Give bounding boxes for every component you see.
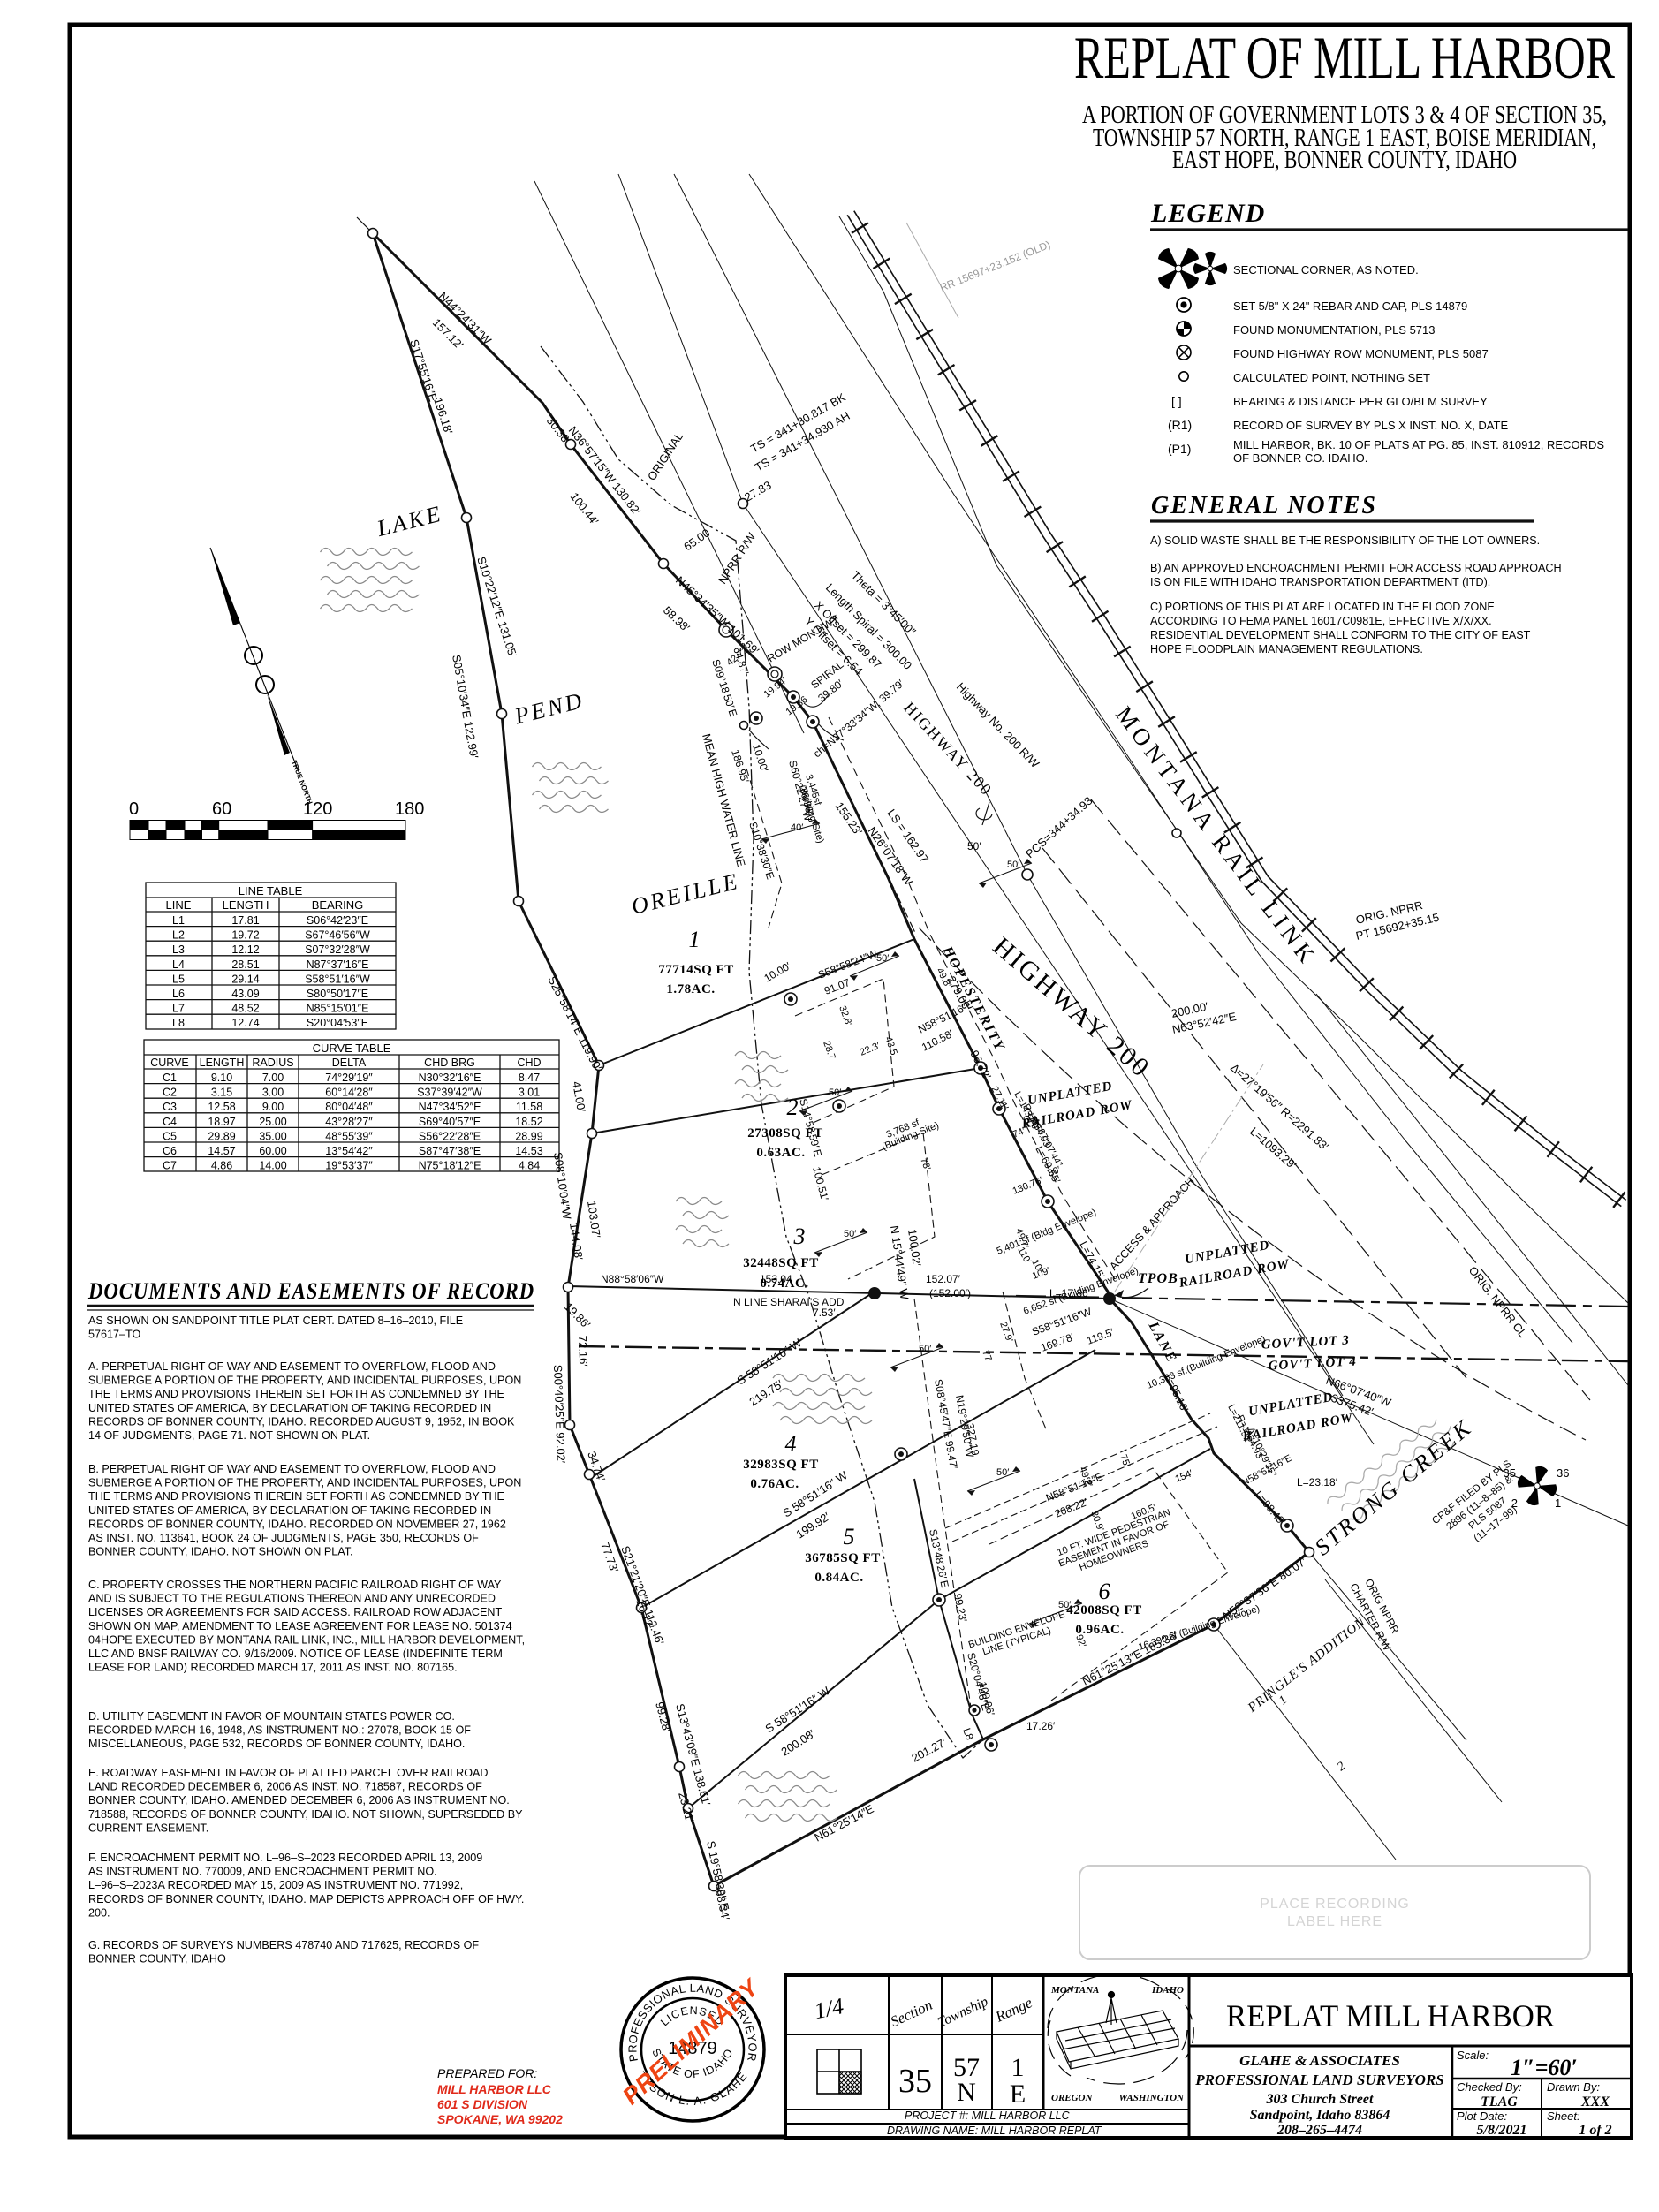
svg-text:S56°22′28″E: S56°22′28″E <box>419 1130 481 1142</box>
svg-text:1.78AC.: 1.78AC. <box>666 982 715 996</box>
svg-text:S67°46′56″W: S67°46′56″W <box>305 929 370 942</box>
svg-text:50′: 50′ <box>919 1344 931 1354</box>
svg-text:L4: L4 <box>172 958 185 971</box>
svg-text:80°04′48″: 80°04′48″ <box>325 1101 373 1113</box>
svg-text:L3: L3 <box>172 943 185 956</box>
svg-text:14.57: 14.57 <box>208 1145 235 1157</box>
svg-text:DRAWING NAME: MILL HARBOR REP: DRAWING NAME: MILL HARBOR REPLAT <box>887 2125 1102 2137</box>
svg-text:60°14′28″: 60°14′28″ <box>325 1087 373 1099</box>
svg-text:N75°18′12″E: N75°18′12″E <box>419 1160 481 1172</box>
svg-text:N30°32′16″E: N30°32′16″E <box>419 1072 481 1084</box>
svg-text:7.00: 7.00 <box>262 1072 284 1084</box>
svg-text:18.97: 18.97 <box>208 1116 235 1128</box>
svg-text:MONTANA: MONTANA <box>1050 1985 1099 1996</box>
svg-text:L2: L2 <box>172 929 185 942</box>
svg-text:OF BONNER CO. IDAHO.: OF BONNER CO. IDAHO. <box>1233 451 1367 465</box>
svg-text:IDAHO: IDAHO <box>1151 1985 1184 1996</box>
svg-text:C3: C3 <box>163 1101 177 1113</box>
svg-text:S80°50′17″E: S80°50′17″E <box>307 988 368 1000</box>
svg-text:OREGON: OREGON <box>1051 2093 1094 2103</box>
svg-text:SPOKANE, WA 99202: SPOKANE, WA 99202 <box>437 2112 563 2126</box>
svg-text:14.53: 14.53 <box>515 1145 542 1157</box>
svg-text:0: 0 <box>129 799 139 819</box>
svg-text:5: 5 <box>844 1524 855 1549</box>
svg-text:S06°42′23″E: S06°42′23″E <box>307 914 368 927</box>
svg-text:PROJECT #: MILL HARBOR LLC: PROJECT #: MILL HARBOR LLC <box>905 2110 1071 2122</box>
svg-text:L8: L8 <box>172 1017 185 1029</box>
svg-text:N85°15′01″E: N85°15′01″E <box>307 1003 369 1015</box>
svg-text:25.00: 25.00 <box>259 1116 286 1128</box>
svg-text:PLACE RECORDING: PLACE RECORDING <box>1260 1897 1410 1912</box>
svg-text:CHD BRG: CHD BRG <box>424 1057 475 1069</box>
svg-text:Drawn By:: Drawn By: <box>1547 2080 1600 2094</box>
svg-text:3.15: 3.15 <box>211 1087 232 1099</box>
svg-text:A. PERPETUAL RIGHT OF WAY A: A. PERPETUAL RIGHT OF WAY AND EASEMENT T… <box>88 1360 496 1373</box>
svg-text:1: 1 <box>689 927 701 952</box>
svg-text:35.00: 35.00 <box>259 1130 286 1142</box>
svg-text:18.52: 18.52 <box>515 1116 542 1128</box>
svg-text:CHD: CHD <box>517 1057 541 1069</box>
svg-text:3.00: 3.00 <box>262 1087 284 1099</box>
svg-text:ACCORDING TO FEMA PANEL 16017C: ACCORDING TO FEMA PANEL 16017C0981E, EFF… <box>1150 615 1492 627</box>
svg-text:(152.00′): (152.00′) <box>929 1287 971 1299</box>
svg-text:12.58: 12.58 <box>208 1101 235 1113</box>
svg-text:C. PROPERTY CROSSES THE NOR: C. PROPERTY CROSSES THE NORTHERN PACIFIC… <box>88 1579 502 1591</box>
svg-text:C) PORTIONS OF THIS PLAT ARE L: C) PORTIONS OF THIS PLAT ARE LOCATED IN … <box>1150 601 1495 613</box>
svg-text:BEARING: BEARING <box>312 898 364 912</box>
svg-text:60.00: 60.00 <box>259 1145 286 1157</box>
svg-text:D. UTILITY EASEMENT IN FAVO: D. UTILITY EASEMENT IN FAVOR OF MOUNTAIN… <box>88 1710 455 1723</box>
svg-text:9.00: 9.00 <box>262 1101 284 1113</box>
svg-text:AND IS SUBJECT TO THE REGULATI: AND IS SUBJECT TO THE REGULATIONS THEREO… <box>88 1593 496 1605</box>
svg-text:0.84AC.: 0.84AC. <box>814 1571 863 1585</box>
svg-text:BONNER COUNTY, IDAHO. AMENDED: BONNER COUNTY, IDAHO. AMENDED DECEMBER 6… <box>88 1794 510 1807</box>
svg-text:BEARING & DISTANCE PER GLO/BLM: BEARING & DISTANCE PER GLO/BLM SURVEY <box>1233 395 1488 408</box>
svg-text:N LINE SHARAI’S ADD: N LINE SHARAI’S ADD <box>733 1296 845 1308</box>
svg-text:C4: C4 <box>163 1116 177 1128</box>
svg-text:L7: L7 <box>172 1003 185 1015</box>
svg-text:C2: C2 <box>163 1087 177 1099</box>
svg-text:F. ENCROACHMENT PERMIT NO.: F. ENCROACHMENT PERMIT NO. L–96–S–2023 R… <box>88 1852 482 1864</box>
svg-text:60: 60 <box>212 799 231 819</box>
svg-text:AS INST. NO. 113641, BOOK 24 O: AS INST. NO. 113641, BOOK 24 OF JUDGMENT… <box>88 1532 479 1544</box>
svg-text:AS SHOWN ON SANDPOINT TITLE PL: AS SHOWN ON SANDPOINT TITLE PLAT CERT. D… <box>88 1314 463 1327</box>
svg-text:REPLAT MILL HARBOR: REPLAT MILL HARBOR <box>1226 1998 1555 2034</box>
svg-text:SUBMERGE A PORTION OF THE PROP: SUBMERGE A PORTION OF THE PROPERTY, AND … <box>88 1375 521 1387</box>
svg-text:601 S DIVISION: 601 S DIVISION <box>437 2097 528 2111</box>
svg-text:32983SQ FT: 32983SQ FT <box>743 1458 818 1472</box>
svg-text:MILL HARBOR, BK. 10 OF PLATS A: MILL HARBOR, BK. 10 OF PLATS AT PG. 85, … <box>1233 438 1604 451</box>
svg-text:E: E <box>1010 2079 1026 2109</box>
svg-text:8.47: 8.47 <box>519 1072 540 1084</box>
svg-text:7.53′: 7.53′ <box>813 1307 836 1319</box>
svg-text:40′: 40′ <box>791 822 803 833</box>
svg-text:200.: 200. <box>88 1906 110 1919</box>
svg-text:PREPARED FOR:: PREPARED FOR: <box>437 2066 537 2080</box>
svg-text:FOUND HIGHWAY ROW MONUMENT, PL: FOUND HIGHWAY ROW MONUMENT, PLS 5087 <box>1233 347 1489 360</box>
svg-text:19°53′37″: 19°53′37″ <box>325 1160 373 1172</box>
svg-text:153.04: 153.04 <box>760 1273 792 1285</box>
svg-text:AS INSTRUMENT NO. 770009, AND: AS INSTRUMENT NO. 770009, AND ENCROACHME… <box>88 1866 437 1878</box>
svg-text:(R1): (R1) <box>1168 418 1192 432</box>
svg-text:Plot Date:: Plot Date: <box>1457 2110 1507 2123</box>
svg-text:DOCUMENTS AND EASEMENTS OF REC: DOCUMENTS AND EASEMENTS OF RECORD <box>87 1278 534 1304</box>
svg-text:50′: 50′ <box>967 840 981 852</box>
svg-text:L5: L5 <box>172 973 185 985</box>
svg-text:43.09: 43.09 <box>231 988 259 1000</box>
svg-text:UNITED STATES OF AMERICA, BY D: UNITED STATES OF AMERICA, BY DECLARATION… <box>88 1504 491 1517</box>
svg-text:43°28′27″: 43°28′27″ <box>325 1116 373 1128</box>
svg-text:180: 180 <box>395 799 424 819</box>
svg-text:4.84: 4.84 <box>519 1160 540 1172</box>
svg-text:SECTIONAL CORNER, AS NOTED.: SECTIONAL CORNER, AS NOTED. <box>1233 263 1419 276</box>
svg-text:17.26′: 17.26′ <box>1026 1720 1056 1732</box>
svg-text:B. PERPETUAL RIGHT OF WAY A: B. PERPETUAL RIGHT OF WAY AND EASEMENT T… <box>88 1463 496 1475</box>
svg-text:LICENSES OR AGREEMENTS FOR SAI: LICENSES OR AGREEMENTS FOR SAID ACCESS. … <box>88 1606 502 1618</box>
svg-text:72.16′: 72.16′ <box>576 1336 590 1367</box>
svg-text:C7: C7 <box>163 1160 177 1172</box>
svg-text:C6: C6 <box>163 1145 177 1157</box>
svg-text:UNITED STATES OF AMERICA, BY D: UNITED STATES OF AMERICA, BY DECLARATION… <box>88 1402 491 1414</box>
svg-text:208–265–4474: 208–265–4474 <box>1276 2123 1362 2138</box>
svg-text:FOUND MONUMENTATION, PLS 5713: FOUND MONUMENTATION, PLS 5713 <box>1233 323 1436 337</box>
svg-text:REPLAT OF MILL HARBOR: REPLAT OF MILL HARBOR <box>1074 24 1615 91</box>
svg-text:RECORD OF SURVEY BY PLS X INST: RECORD OF SURVEY BY PLS X INST. NO. X, D… <box>1233 419 1508 432</box>
svg-text:S37°39′42″W: S37°39′42″W <box>417 1087 482 1099</box>
svg-text:RADIUS: RADIUS <box>252 1057 293 1069</box>
svg-text:LLC AND BNSF RAILWAY CO. 9/16/: LLC AND BNSF RAILWAY CO. 9/16/2009. NOTI… <box>88 1648 503 1660</box>
svg-text:XXX: XXX <box>1580 2095 1610 2110</box>
svg-text:G. RECORDS OF SURVEYS NUMBE: G. RECORDS OF SURVEYS NUMBERS 478740 AND… <box>88 1939 479 1951</box>
svg-text:BONNER COUNTY, IDAHO. NOT SHOW: BONNER COUNTY, IDAHO. NOT SHOWN ON PLAT. <box>88 1546 353 1558</box>
svg-text:LEGEND: LEGEND <box>1150 199 1265 228</box>
svg-text:4.86: 4.86 <box>211 1160 232 1172</box>
svg-text:BONNER COUNTY, IDAHO: BONNER COUNTY, IDAHO <box>88 1953 226 1966</box>
svg-text:GENERAL NOTES: GENERAL NOTES <box>1151 492 1377 519</box>
svg-text:28.51: 28.51 <box>231 958 259 971</box>
svg-text:N: N <box>957 2078 976 2107</box>
svg-text:LABEL HERE: LABEL HERE <box>1287 1914 1382 1929</box>
svg-text:EAST HOPE, BONNER COUNTY, IDAH: EAST HOPE, BONNER COUNTY, IDAHO <box>1172 146 1517 174</box>
svg-text:L–96–S–2023A RECORDED MAY 15,: L–96–S–2023A RECORDED MAY 15, 2009 AS IN… <box>88 1879 463 1891</box>
svg-text:RECORDS OF BONNER COUNTY, IDAH: RECORDS OF BONNER COUNTY, IDAHO. RECORDE… <box>88 1518 506 1530</box>
svg-text:1: 1 <box>1011 2053 1025 2082</box>
svg-text:CURVE: CURVE <box>150 1057 189 1069</box>
svg-text:12.74: 12.74 <box>231 1017 259 1029</box>
svg-text:THE TERMS AND PROVISIONS THERE: THE TERMS AND PROVISIONS THEREIN SET FOR… <box>88 1490 504 1503</box>
svg-text:74°29′19″: 74°29′19″ <box>325 1072 373 1084</box>
svg-text:B) AN APPROVED ENCROACHMENT PE: B) AN APPROVED ENCROACHMENT PERMIT FOR A… <box>1150 562 1562 574</box>
svg-text:29.89: 29.89 <box>208 1130 235 1142</box>
svg-text:1: 1 <box>1555 1496 1561 1510</box>
svg-text:E. ROADWAY EASEMENT IN FAVO: E. ROADWAY EASEMENT IN FAVOR OF PLATTED … <box>88 1767 489 1779</box>
svg-text:50′: 50′ <box>844 1229 856 1239</box>
svg-text:17.81: 17.81 <box>231 914 259 927</box>
svg-text:S07°32′28″W: S07°32′28″W <box>305 943 370 956</box>
svg-text:1 of 2: 1 of 2 <box>1579 2123 1611 2138</box>
svg-text:LINE: LINE <box>166 898 192 912</box>
svg-text:14 OF JUDGMENTS, PAGE 71. NOT: 14 OF JUDGMENTS, PAGE 71. NOT SHOWN ON P… <box>88 1429 370 1442</box>
svg-text:152.07′: 152.07′ <box>926 1273 961 1285</box>
svg-text:36: 36 <box>1557 1466 1569 1480</box>
svg-text:12.12: 12.12 <box>231 943 259 956</box>
svg-text:CURVE TABLE: CURVE TABLE <box>313 1042 391 1055</box>
svg-text:50′: 50′ <box>996 1467 1009 1478</box>
svg-text:CURRENT EASEMENT.: CURRENT EASEMENT. <box>88 1822 208 1834</box>
svg-text:RECORDS OF BONNER COUNTY, IDAH: RECORDS OF BONNER COUNTY, IDAHO. MAP DEP… <box>88 1893 524 1905</box>
svg-text:0.63AC.: 0.63AC. <box>756 1146 805 1160</box>
svg-text:N47°34′52″E: N47°34′52″E <box>419 1101 481 1113</box>
svg-text:S20°04′53″E: S20°04′53″E <box>307 1017 368 1029</box>
svg-text:S58°51′16″W: S58°51′16″W <box>305 973 370 985</box>
svg-text:THE TERMS AND PROVISIONS THERE: THE TERMS AND PROVISIONS THEREIN SET FOR… <box>88 1388 504 1400</box>
svg-text:Checked By:: Checked By: <box>1457 2080 1522 2094</box>
svg-text:11.58: 11.58 <box>516 1101 542 1113</box>
svg-text:C5: C5 <box>163 1130 177 1142</box>
svg-text:32448SQ FT: 32448SQ FT <box>743 1256 818 1270</box>
svg-text:A) SOLID WASTE SHALL BE THE RE: A) SOLID WASTE SHALL BE THE RESPONSIBILI… <box>1150 534 1540 547</box>
svg-text:CALCULATED POINT, NOTHING SET: CALCULATED POINT, NOTHING SET <box>1233 371 1430 384</box>
svg-text:14.00: 14.00 <box>259 1160 286 1172</box>
svg-text:TLAG: TLAG <box>1481 2095 1518 2110</box>
svg-text:N88°58′06″W: N88°58′06″W <box>601 1273 664 1285</box>
svg-text:Sheet:: Sheet: <box>1547 2110 1580 2123</box>
svg-text:3.01: 3.01 <box>519 1087 540 1099</box>
svg-text:3: 3 <box>793 1223 806 1249</box>
svg-text:MISCELLANEOUS, PAGE 532, RECOR: MISCELLANEOUS, PAGE 532, RECORDS OF BONN… <box>88 1738 465 1750</box>
svg-text:SUBMERGE A PORTION OF THE PROP: SUBMERGE A PORTION OF THE PROPERTY, AND … <box>88 1477 521 1489</box>
svg-text:29.14: 29.14 <box>231 973 259 985</box>
svg-text:04HOPE EXECUTED BY MONTANA RAI: 04HOPE EXECUTED BY MONTANA RAIL LINK, IN… <box>88 1633 525 1646</box>
svg-text:Scale:: Scale: <box>1457 2049 1489 2062</box>
svg-text:L=23.18′: L=23.18′ <box>1297 1476 1338 1489</box>
svg-text:DELTA: DELTA <box>332 1057 367 1069</box>
svg-text:0.76AC.: 0.76AC. <box>750 1477 799 1491</box>
svg-text:IS ON FILE WITH IDAHO TRANSPOR: IS ON FILE WITH IDAHO TRANSPORTATION DEP… <box>1150 576 1490 588</box>
svg-text:[ ]: [ ] <box>1171 394 1182 408</box>
svg-text:28.99: 28.99 <box>515 1130 542 1142</box>
svg-text:36785SQ FT: 36785SQ FT <box>805 1551 880 1565</box>
svg-text:C1: C1 <box>163 1072 177 1084</box>
svg-text:57617–TO: 57617–TO <box>88 1329 140 1341</box>
svg-text:303 Church Street: 303 Church Street <box>1266 2092 1374 2107</box>
svg-text:50′: 50′ <box>1058 1600 1071 1610</box>
svg-text:48.52: 48.52 <box>231 1003 259 1015</box>
svg-text:PROFESSIONAL LAND SURVEYORS: PROFESSIONAL LAND SURVEYORS <box>1194 2072 1444 2088</box>
svg-text:SHOWN ON MAP, AMENDMENT TO LEA: SHOWN ON MAP, AMENDMENT TO LEASE AGREEME… <box>88 1620 512 1632</box>
svg-text:N87°37′16″E: N87°37′16″E <box>307 958 369 971</box>
svg-text:SET 5/8" X 24" REBAR AND CAP,: SET 5/8" X 24" REBAR AND CAP, PLS 14879 <box>1233 299 1467 313</box>
svg-text:LENGTH: LENGTH <box>223 898 269 912</box>
svg-text:S69°40′57″E: S69°40′57″E <box>419 1116 481 1128</box>
svg-text:LEASE FOR LAND) RECORDED MARCH: LEASE FOR LAND) RECORDED MARCH 17, 2011 … <box>88 1662 458 1674</box>
svg-text:6: 6 <box>1099 1579 1110 1604</box>
svg-text:L6: L6 <box>172 988 185 1000</box>
svg-text:19.72: 19.72 <box>231 929 259 942</box>
svg-text:48°55′39″: 48°55′39″ <box>325 1130 373 1142</box>
svg-text:WASHINGTON: WASHINGTON <box>1118 2093 1185 2103</box>
svg-text:4: 4 <box>785 1431 797 1457</box>
svg-text:5/8/2021: 5/8/2021 <box>1477 2123 1527 2138</box>
svg-text:HOPE FLOODPLAIN MANAGEMENT REG: HOPE FLOODPLAIN MANAGEMENT REGULATIONS. <box>1150 643 1423 655</box>
svg-text:1″=60′: 1″=60′ <box>1511 2055 1578 2080</box>
svg-text:50′: 50′ <box>876 953 889 964</box>
svg-text:LENGTH: LENGTH <box>200 1057 245 1069</box>
svg-text:S87°47′38″E: S87°47′38″E <box>419 1145 481 1157</box>
svg-text:Sandpoint, Idaho 83864: Sandpoint, Idaho 83864 <box>1250 2108 1390 2123</box>
svg-text:9.10: 9.10 <box>211 1072 232 1084</box>
svg-text:LAND RECORDED DECEMBER 6, 2006: LAND RECORDED DECEMBER 6, 2006 AS INST. … <box>88 1781 482 1793</box>
svg-text:GLAHE & ASSOCIATES: GLAHE & ASSOCIATES <box>1239 2052 1400 2069</box>
svg-text:35: 35 <box>898 2063 932 2100</box>
svg-text:LINE TABLE: LINE TABLE <box>239 884 303 898</box>
svg-text:L1: L1 <box>172 914 185 927</box>
svg-text:13°54′42″: 13°54′42″ <box>325 1145 373 1157</box>
svg-text:50′: 50′ <box>829 1087 841 1098</box>
svg-text:(P1): (P1) <box>1168 442 1191 456</box>
svg-text:50′: 50′ <box>1007 860 1019 870</box>
svg-text:RECORDED MARCH 16, 1948, AS IN: RECORDED MARCH 16, 1948, AS INSTRUMENT N… <box>88 1724 471 1737</box>
svg-text:RESIDENTIAL DEVELOPMENT SHALL: RESIDENTIAL DEVELOPMENT SHALL CONFORM TO… <box>1150 629 1531 641</box>
svg-text:718588, RECORDS OF BONNER COUN: 718588, RECORDS OF BONNER COUNTY, IDAHO.… <box>88 1808 523 1821</box>
svg-text:RECORDS OF BONNER COUNTY, IDAH: RECORDS OF BONNER COUNTY, IDAHO. RECORDE… <box>88 1415 515 1428</box>
svg-text:TPOB: TPOB <box>1138 1271 1178 1286</box>
svg-text:2: 2 <box>787 1095 799 1120</box>
svg-text:MILL HARBOR LLC: MILL HARBOR LLC <box>437 2082 552 2096</box>
svg-text:77714SQ FT: 77714SQ FT <box>658 963 733 977</box>
